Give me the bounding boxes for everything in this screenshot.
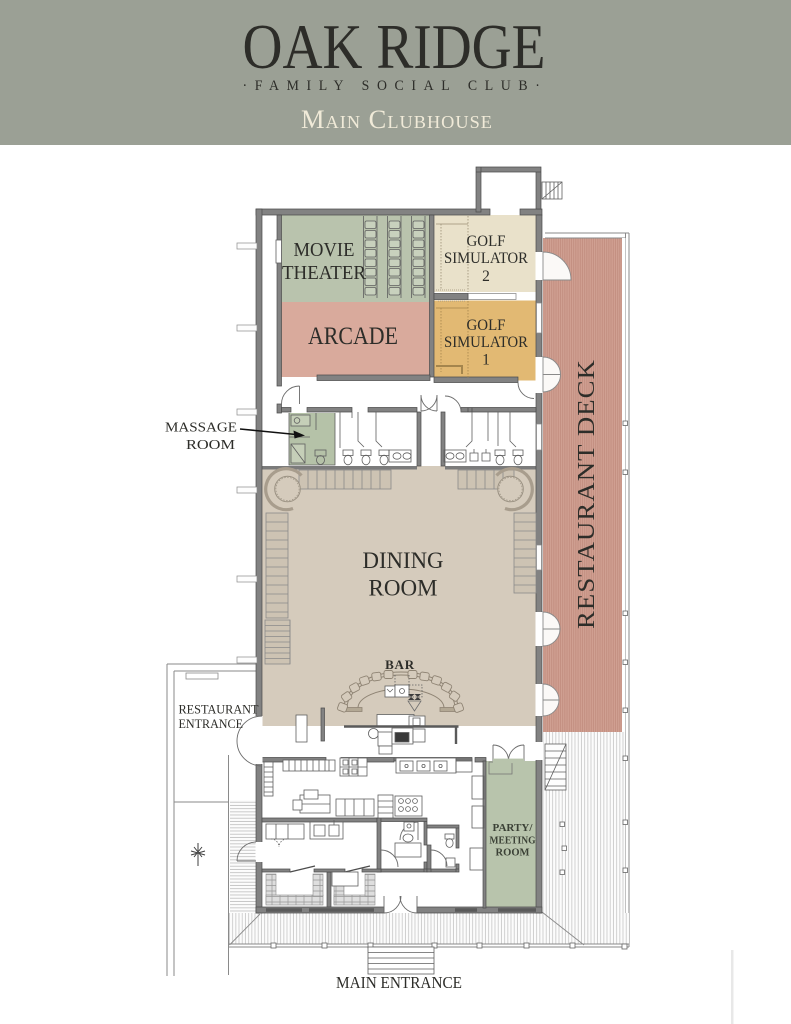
svg-text:PARTY/: PARTY/: [493, 822, 534, 834]
svg-text:1: 1: [482, 352, 490, 369]
svg-text:ARCADE: ARCADE: [308, 323, 398, 350]
svg-text:MEETING: MEETING: [490, 835, 536, 847]
svg-text:ROOM: ROOM: [369, 576, 438, 602]
svg-text:SIMULATOR: SIMULATOR: [444, 334, 529, 351]
svg-text:MAIN ENTRANCE: MAIN ENTRANCE: [336, 973, 462, 992]
svg-text:GOLF: GOLF: [467, 233, 506, 250]
svg-text:ROOM: ROOM: [186, 437, 235, 452]
svg-text:THEATER: THEATER: [282, 262, 366, 284]
svg-text:·FAMILY SOCIAL CLUB·: ·FAMILY SOCIAL CLUB·: [243, 78, 548, 94]
svg-text:RESTAURANT DECK: RESTAURANT DECK: [573, 359, 600, 629]
svg-text:OAK RIDGE: OAK RIDGE: [243, 11, 546, 82]
svg-text:GOLF: GOLF: [467, 317, 506, 334]
svg-text:ROOM: ROOM: [496, 847, 531, 859]
svg-text:Main Clubhouse: Main Clubhouse: [301, 105, 493, 134]
svg-text:BAR: BAR: [385, 657, 415, 672]
svg-text:RESTAURANT: RESTAURANT: [179, 702, 259, 717]
svg-text:2: 2: [482, 268, 490, 285]
svg-text:ENTRANCE: ENTRANCE: [179, 716, 244, 731]
svg-text:MASSAGE: MASSAGE: [165, 420, 237, 435]
svg-text:MOVIE: MOVIE: [294, 239, 355, 261]
svg-text:DINING: DINING: [363, 548, 444, 574]
svg-text:SIMULATOR: SIMULATOR: [444, 250, 529, 267]
